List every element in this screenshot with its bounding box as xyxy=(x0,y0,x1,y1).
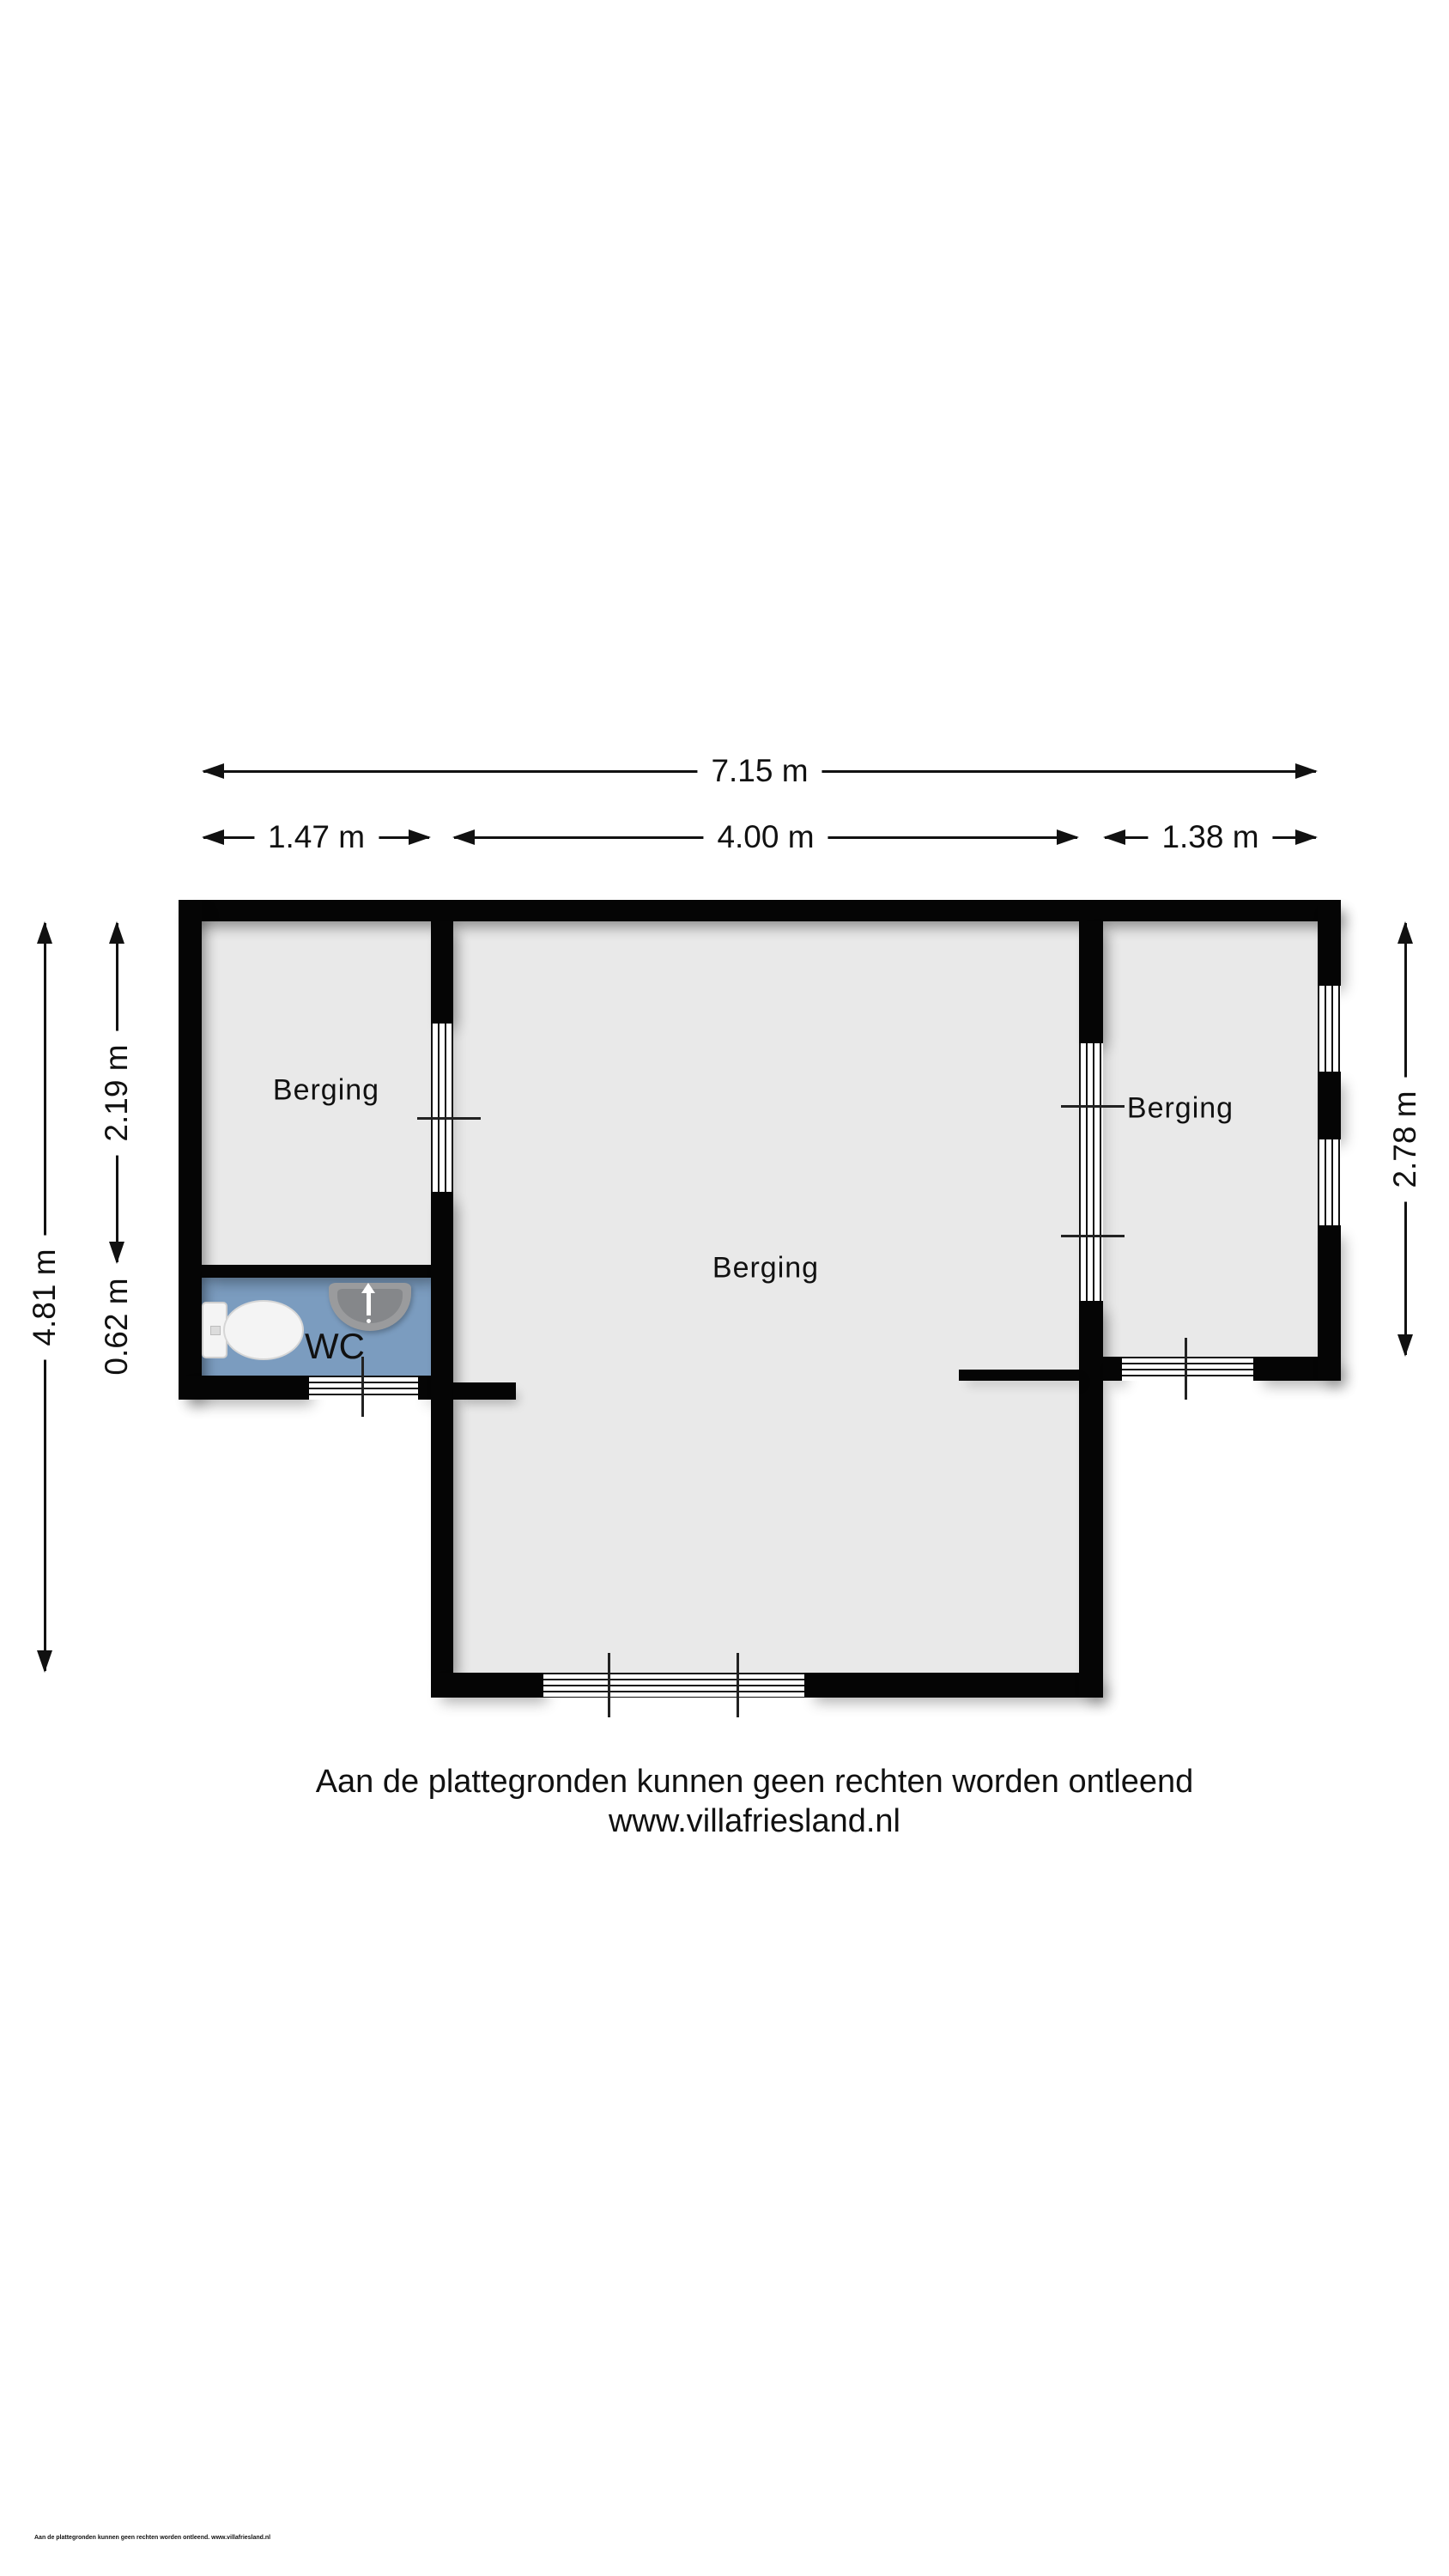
door-right-berging-bottom xyxy=(1122,1357,1253,1381)
arrow-left-icon xyxy=(1103,829,1125,845)
floor-berging-center xyxy=(453,921,1079,1673)
door-tick xyxy=(1061,1105,1125,1108)
room-label-berging-right: Berging xyxy=(1127,1092,1234,1126)
arrow-left-icon xyxy=(202,763,224,779)
room-label-wc: WC xyxy=(305,1326,365,1367)
wall-left-exterior xyxy=(179,900,202,1400)
dimension-left-total: 4.81 m xyxy=(29,921,60,1673)
wall-berging-wc-divider xyxy=(202,1265,431,1278)
arrow-left-icon xyxy=(202,829,224,845)
disclaimer-line1: Aan de plattegronden kunnen geen rechten… xyxy=(30,1762,1449,1801)
wall-center-right-lower xyxy=(1079,1301,1103,1698)
wall-top xyxy=(179,900,1341,921)
dimension-left-wc-label: 0.62 m xyxy=(99,1269,135,1383)
wall-right-berging-bottom-left xyxy=(1103,1357,1122,1381)
dimension-label: 2.19 m xyxy=(99,1030,135,1155)
arrow-right-icon xyxy=(1295,763,1318,779)
wall-stub-left xyxy=(453,1382,516,1400)
arrow-down-icon xyxy=(1397,1334,1413,1357)
door-tick xyxy=(417,1117,481,1120)
window-right-lower xyxy=(1318,1139,1341,1225)
window-tick xyxy=(737,1653,739,1717)
dimension-right-side: 2.78 m xyxy=(1390,921,1421,1357)
faucet-dot xyxy=(367,1319,371,1323)
window-right-upper xyxy=(1318,986,1341,1072)
wall-wc-bottom-left xyxy=(179,1376,309,1400)
wall-center-left-upper xyxy=(431,921,453,1024)
toilet-bowl-icon xyxy=(223,1300,304,1360)
dimension-label: 1.38 m xyxy=(1148,819,1272,855)
dimension-label: 4.81 m xyxy=(27,1235,63,1359)
wall-center-right-upper xyxy=(1079,921,1103,1043)
door-tick xyxy=(1061,1235,1125,1237)
dimension-top-total: 7.15 m xyxy=(202,756,1318,787)
arrow-up-icon xyxy=(1397,921,1413,944)
disclaimer-text: Aan de plattegronden kunnen geen rechten… xyxy=(30,1762,1449,1841)
arrow-left-icon xyxy=(452,829,475,845)
wall-wc-bottom-right xyxy=(418,1376,431,1400)
wall-stub-right xyxy=(959,1370,1079,1381)
dimension-label: 7.15 m xyxy=(697,753,822,789)
window-bottom xyxy=(543,1673,804,1698)
arrow-right-icon xyxy=(409,829,431,845)
arrow-right-icon xyxy=(1057,829,1079,845)
dimension-label: 4.00 m xyxy=(703,819,828,855)
dimension-left-upper: 2.19 m xyxy=(101,921,132,1264)
wall-bottom-left-segment xyxy=(431,1673,543,1698)
dimension-top-right: 1.38 m xyxy=(1103,822,1318,853)
wall-right-exterior-upper xyxy=(1318,900,1341,986)
toilet-flush-button xyxy=(210,1326,221,1335)
arrow-up-icon xyxy=(109,921,124,944)
dimension-top-left: 1.47 m xyxy=(202,822,431,853)
arrow-right-icon xyxy=(1295,829,1318,845)
disclaimer-line2: www.villafriesland.nl xyxy=(30,1801,1449,1841)
dimension-label: 2.78 m xyxy=(1387,1077,1423,1201)
arrow-up-icon xyxy=(37,921,52,944)
arrow-down-icon xyxy=(109,1242,124,1264)
dimension-top-center: 4.00 m xyxy=(452,822,1079,853)
window-tick xyxy=(608,1653,610,1717)
room-label-berging-left: Berging xyxy=(273,1074,379,1108)
wall-bottom-right-segment xyxy=(804,1673,1103,1698)
room-label-berging-center: Berging xyxy=(712,1252,819,1285)
faucet-stem xyxy=(367,1291,371,1315)
door-berging-left xyxy=(431,1024,453,1192)
fine-print-text: Aan de plattegronden kunnen geen rechten… xyxy=(34,2535,270,2541)
arrow-down-icon xyxy=(37,1650,52,1673)
floor-berging-right xyxy=(1103,921,1318,1357)
wall-right-exterior-lower xyxy=(1318,1225,1341,1381)
wall-center-left-lower xyxy=(431,1192,453,1673)
door-tick xyxy=(1185,1338,1187,1400)
door-berging-right xyxy=(1079,1043,1103,1301)
wall-right-exterior-middle xyxy=(1318,1072,1341,1139)
floorplan-canvas: Berging Berging Berging WC 7.15 m 1.47 m… xyxy=(0,0,1449,2576)
dimension-label: 1.47 m xyxy=(254,819,379,855)
